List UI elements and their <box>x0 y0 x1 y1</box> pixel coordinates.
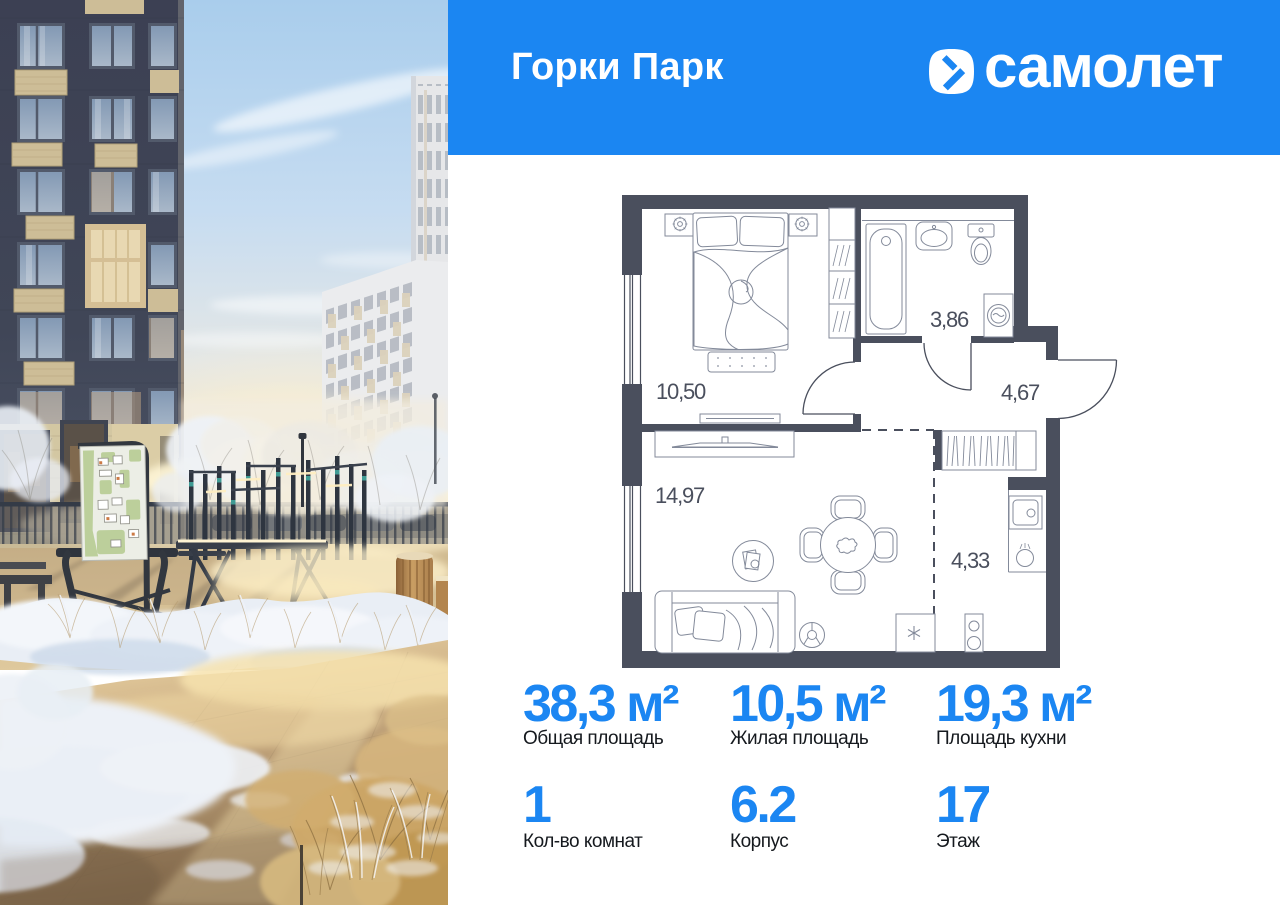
svg-text:4,67: 4,67 <box>1001 380 1040 405</box>
svg-text:10,50: 10,50 <box>656 379 706 404</box>
svg-text:4,33: 4,33 <box>951 548 990 573</box>
svg-text:самолет: самолет <box>984 36 1223 100</box>
svg-text:3,86: 3,86 <box>930 307 969 332</box>
svg-text:14,97: 14,97 <box>655 483 705 508</box>
